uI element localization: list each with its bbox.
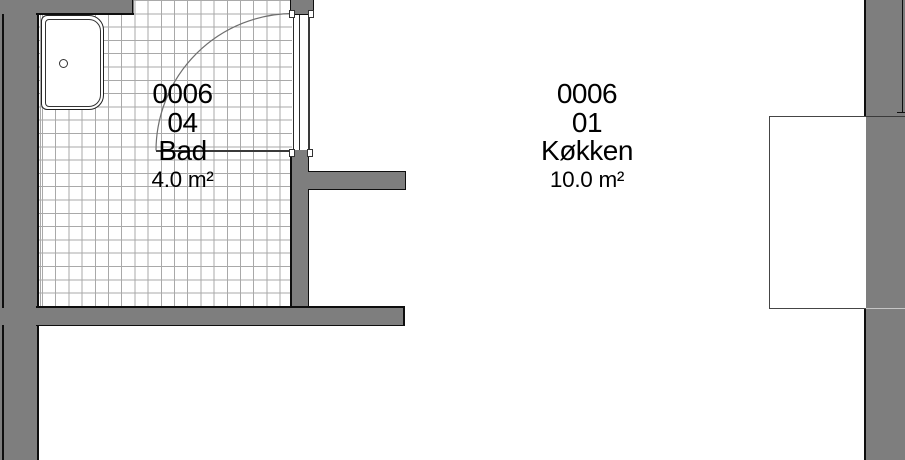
wall-outline [405,171,407,191]
wall-outline [2,13,4,460]
room-area: 10.0 m² [487,166,687,195]
door-stop [307,149,314,157]
wall-outline [403,306,405,326]
wall-outline [308,171,406,173]
door-leaf [293,14,300,151]
wall-left [0,0,39,460]
floor-plan: 0006 04 Bad 4.0 m² 0006 01 Køkken 10.0 m… [0,0,905,460]
wall-outline [902,0,904,113]
wall-outline [36,325,405,327]
wall-outline [36,13,134,15]
room-unit: 0006 [487,80,687,109]
wall-cross-line-light [866,308,905,309]
room-number: 01 [487,109,687,138]
wall-bathroom-right [292,150,308,325]
room-name: Bad [83,137,283,166]
wall-outline [132,0,134,15]
wall-outline [897,112,905,114]
drain-symbol [59,59,68,68]
door-stop [308,10,315,18]
door-jamb-line [308,14,309,151]
wall-cross-line [866,116,905,118]
wall-outline [37,13,39,460]
room-unit: 0006 [83,80,283,109]
wall-top-left [0,0,134,14]
door-stop [289,149,296,157]
wall-outline [308,189,406,191]
wall-stub-horizontal [308,172,405,189]
wall-outline [36,306,405,308]
room-number: 04 [83,109,283,138]
door-stop [289,10,296,18]
room-label-kitchen: 0006 01 Køkken 10.0 m² [487,80,687,194]
wall-bottom [0,308,405,325]
room-name: Køkken [487,137,687,166]
wall-right [866,0,905,460]
wall-outline [290,150,292,307]
kitchen-counter [769,116,866,309]
room-area: 4.0 m² [83,166,283,195]
room-label-bathroom: 0006 04 Bad 4.0 m² [83,80,283,194]
wall-outline [308,189,310,307]
